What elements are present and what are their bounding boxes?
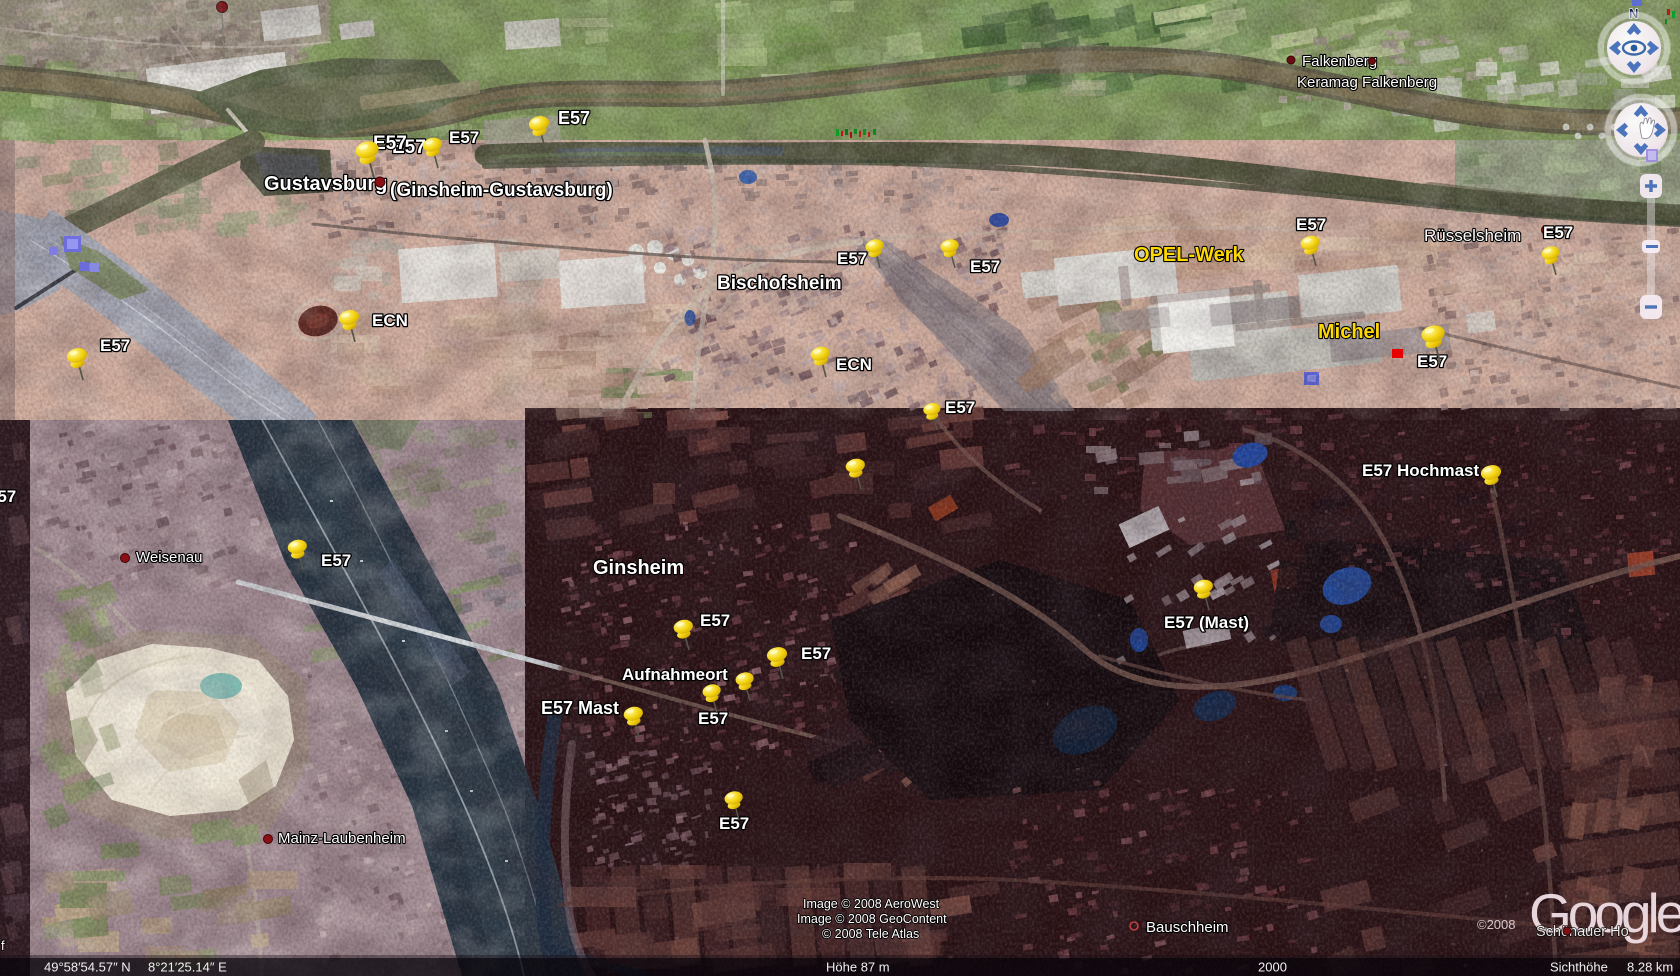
svg-text:E57: E57 — [1543, 223, 1573, 242]
svg-text:Weisenau: Weisenau — [136, 549, 202, 566]
svg-text:E57: E57 — [700, 611, 730, 630]
svg-text:E57: E57 — [970, 257, 1000, 276]
svg-text:E57: E57 — [321, 551, 351, 570]
svg-text:Image © 2008 AeroWest: Image © 2008 AeroWest — [803, 897, 940, 911]
svg-text:49°58′54.57″ N: 49°58′54.57″ N — [44, 960, 131, 975]
svg-text:E57 Mast: E57 Mast — [541, 698, 619, 718]
svg-text:2000: 2000 — [1258, 960, 1287, 975]
svg-text:Falkenberg: Falkenberg — [1302, 53, 1377, 70]
svg-text:Rüsselsheim: Rüsselsheim — [1424, 226, 1521, 245]
svg-text:E57: E57 — [945, 398, 975, 417]
svg-text:(Ginsheim-Gustavsburg): (Ginsheim-Gustavsburg) — [390, 180, 613, 201]
svg-text:E57: E57 — [449, 128, 479, 147]
svg-text:© 2008 Tele Atlas: © 2008 Tele Atlas — [822, 927, 919, 941]
svg-text:8.28 km: 8.28 km — [1627, 960, 1673, 975]
svg-text:E57 Hochmast: E57 Hochmast — [1362, 461, 1479, 480]
svg-text:Image © 2008 GeoContent: Image © 2008 GeoContent — [797, 912, 947, 926]
svg-text:Keramag Falkenberg: Keramag Falkenberg — [1297, 74, 1437, 91]
svg-text:Michel: Michel — [1318, 321, 1380, 343]
svg-text:E57: E57 — [698, 709, 728, 728]
svg-text:Schönauer Ho: Schönauer Ho — [1536, 924, 1629, 940]
svg-text:Mainz-Laubenheim: Mainz-Laubenheim — [278, 830, 406, 847]
svg-text:OPEL-Werk: OPEL-Werk — [1134, 244, 1245, 266]
svg-text:ECN: ECN — [372, 311, 408, 330]
svg-text:Bischofsheim: Bischofsheim — [717, 273, 842, 294]
svg-text:Bauschheim: Bauschheim — [1146, 919, 1229, 936]
svg-text:Sichthöhe: Sichthöhe — [1550, 960, 1608, 975]
svg-text:ECN: ECN — [836, 355, 872, 374]
svg-text:E57: E57 — [100, 336, 130, 355]
svg-text:E57: E57 — [558, 108, 590, 128]
svg-text:E57: E57 — [0, 487, 16, 506]
svg-text:E57: E57 — [1296, 215, 1326, 234]
svg-text:©2008: ©2008 — [1477, 917, 1516, 932]
svg-text:E57 (Mast): E57 (Mast) — [1164, 613, 1249, 632]
svg-text:Gustavsburg: Gustavsburg — [264, 173, 387, 195]
svg-text:E57: E57 — [837, 249, 867, 268]
svg-text:8°21′25.14″ E: 8°21′25.14″ E — [148, 960, 227, 975]
svg-text:E57: E57 — [719, 814, 749, 833]
svg-text:Höhe 87 m: Höhe 87 m — [826, 960, 890, 975]
svg-text:E57: E57 — [1417, 352, 1447, 371]
svg-text:Aufnahmeort: Aufnahmeort — [622, 665, 728, 684]
svg-text:E57: E57 — [801, 644, 831, 663]
svg-text:Ginsheim: Ginsheim — [593, 557, 684, 579]
svg-text:f: f — [1, 938, 5, 953]
